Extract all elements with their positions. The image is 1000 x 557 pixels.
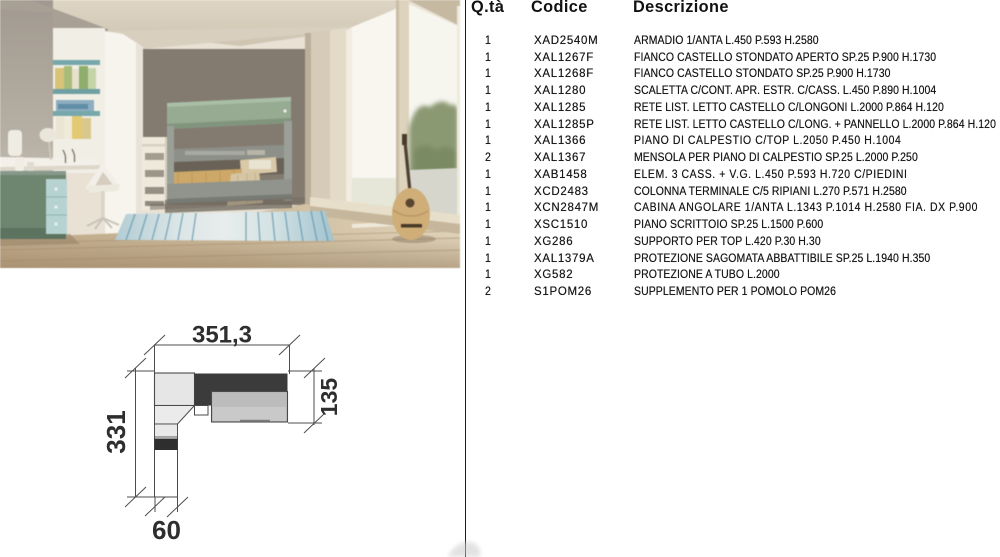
svg-text:60: 60	[152, 515, 181, 545]
svg-text:135: 135	[316, 378, 342, 417]
svg-text:331: 331	[101, 410, 131, 453]
svg-text:351,3: 351,3	[192, 322, 252, 349]
